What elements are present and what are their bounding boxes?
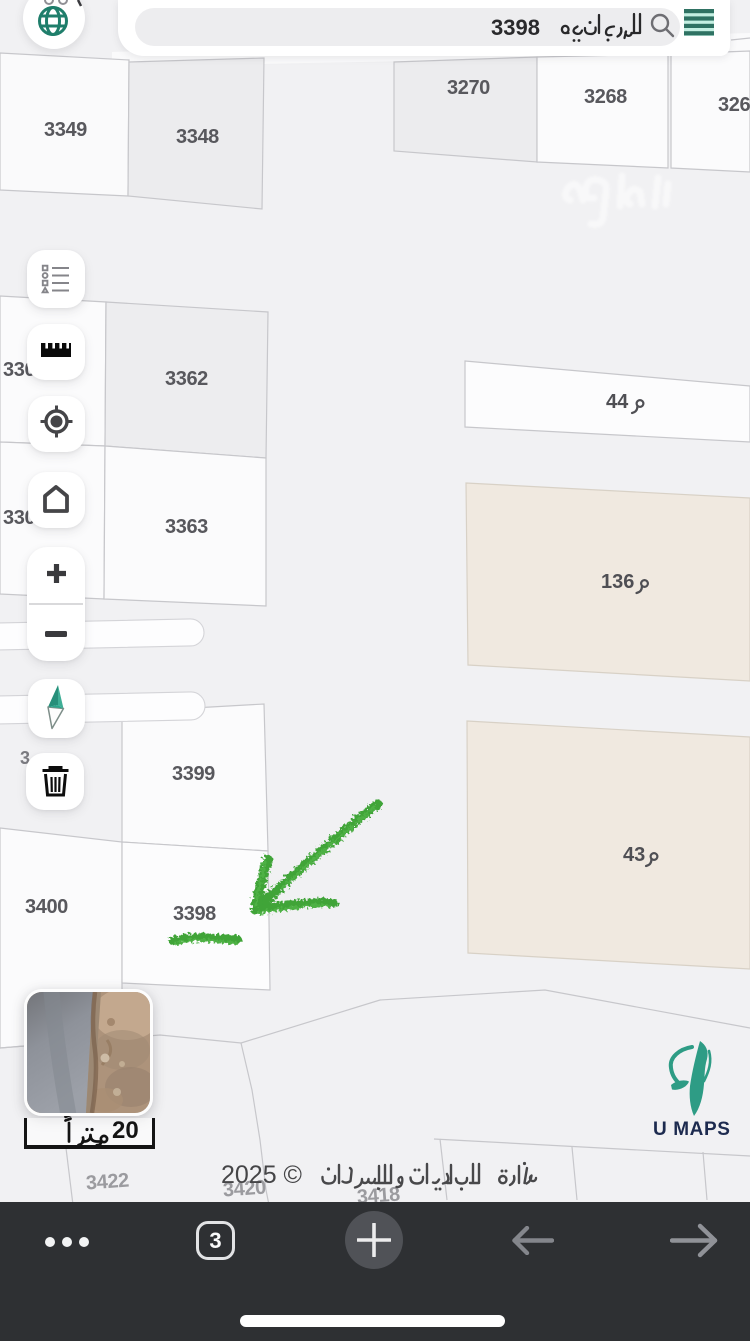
svg-text:43: 43: [623, 844, 645, 866]
svg-text:44: 44: [606, 391, 629, 413]
svg-text:136: 136: [601, 571, 634, 593]
